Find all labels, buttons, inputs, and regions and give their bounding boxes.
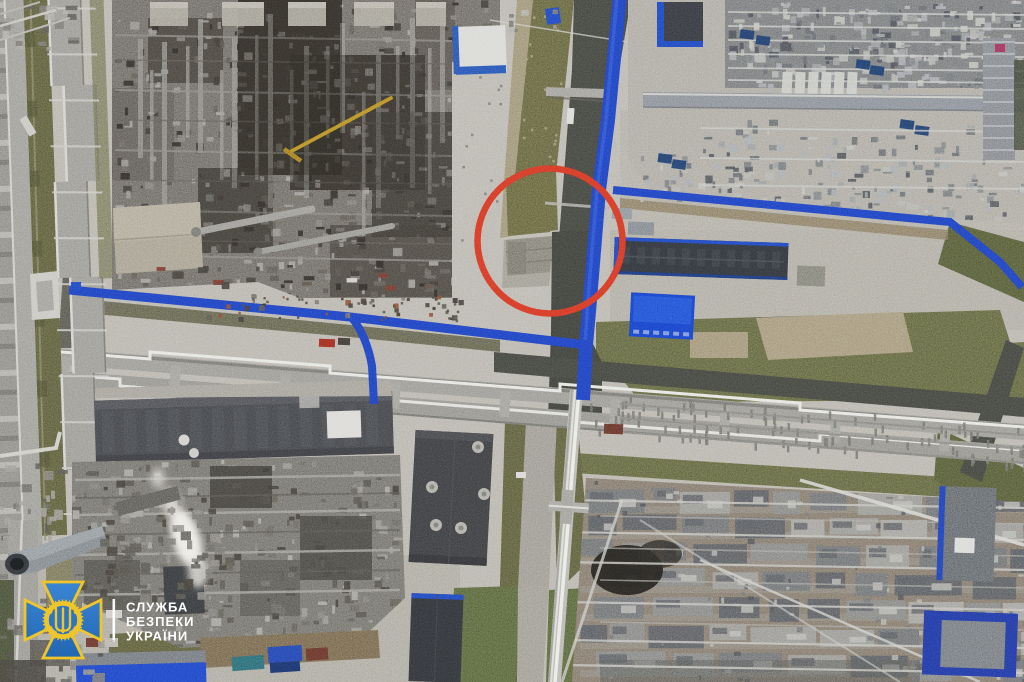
svg-text:УКРАЇНИ: УКРАЇНИ [126,629,188,644]
svg-text:СЛУЖБА: СЛУЖБА [126,600,188,615]
svg-text:БЕЗПЕКИ: БЕЗПЕКИ [126,614,194,629]
